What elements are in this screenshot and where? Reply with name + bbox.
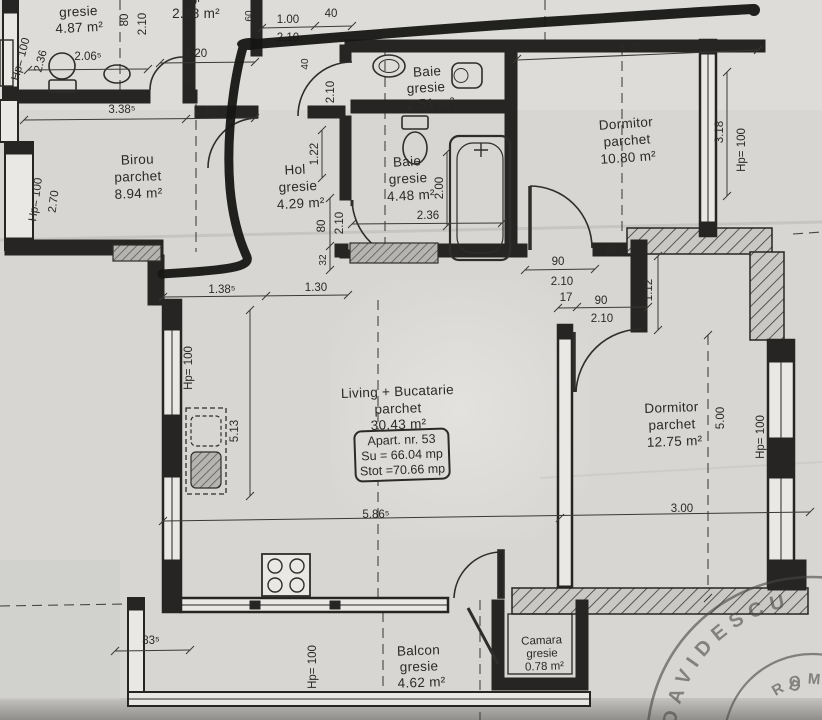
dim-label: 1.12 [643, 279, 655, 301]
dim-label: 2.10 [137, 13, 149, 35]
room-finish: parchet [114, 168, 162, 185]
room-finish: gresie [526, 647, 558, 660]
dim-label: 2.06⁵ [74, 51, 101, 63]
room-finish: gresie [406, 79, 445, 96]
floor-plan-scan: gresie 4.87 m² gr 2.98 m² Baie gresie 2.… [0, 0, 822, 720]
dim-label: Hp= 100 [183, 346, 195, 390]
room-area: 4.62 m² [397, 674, 446, 691]
room-area: 12.75 m² [647, 433, 703, 450]
dim-label: 90 [552, 256, 565, 268]
radiator-icon [113, 245, 161, 261]
dim-label: 80 [316, 220, 328, 233]
dim-label: 83⁵ [142, 635, 160, 647]
apartment-info-box: Apart. nr. 53 Su = 66.04 mp Stot =70.66 … [354, 428, 450, 481]
dim-label: 3.18 [714, 121, 726, 143]
dim-label: 17 [560, 292, 573, 304]
dim-label: 90 [183, 78, 195, 89]
dim-label: 32 [318, 254, 329, 266]
dim-label: 60 [244, 10, 255, 22]
room-finish: gresie [59, 3, 98, 20]
dim-label: 40 [300, 58, 311, 70]
dim-label: 2.00 [434, 177, 446, 199]
room-area: 0.78 m² [525, 660, 565, 673]
dim-label: 2.10 [195, 105, 217, 117]
dim-label: 1.20 [185, 48, 207, 60]
room-finish: parchet [374, 400, 422, 417]
room-finish: gresie [399, 658, 438, 674]
room-finish: gresie [388, 170, 427, 187]
room-area: 4.48 m² [387, 187, 436, 204]
dim-label: Hp= 100 [736, 128, 748, 172]
room-name: Hol [284, 162, 306, 178]
dim-label: 40 [325, 8, 338, 20]
room-name: Dormitor [644, 399, 699, 416]
dim-label: 1.22 [309, 143, 321, 165]
room-name: Balcon [397, 642, 441, 658]
dim-label: 2.10 [551, 276, 573, 288]
room-name: Birou [121, 151, 155, 167]
room-finish: gr [191, 0, 201, 5]
dim-label: 2.10 [325, 81, 337, 103]
room-name: Camara [521, 634, 563, 647]
room-area: 4.29 m² [277, 195, 326, 212]
dim-label: 3.00 [671, 503, 693, 515]
radiator-icon [350, 243, 438, 263]
dim-label: 2.10 [591, 313, 613, 325]
room-name: Baie [413, 63, 442, 79]
dim-label: 1.30 [305, 282, 327, 294]
dim-label: 1.38⁵ [208, 284, 235, 296]
apartment-number: Apart. nr. 53 [367, 432, 436, 448]
room-area: 8.94 m² [114, 185, 163, 202]
room-area: 4.87 m² [55, 19, 104, 36]
dim-label: 3.70 [618, 42, 641, 55]
dim-label: Hp= 100 [755, 415, 767, 459]
dim-label: Hp= 100 [307, 645, 319, 689]
dim-label: 5.86⁵ [362, 509, 389, 521]
room-area: 2.51 m² [407, 95, 456, 112]
floor-plan-drawing: gresie 4.87 m² gr 2.98 m² Baie gresie 2.… [0, 0, 822, 720]
dim-label: 80 [119, 14, 131, 27]
dim-label: 5.13 [229, 420, 241, 442]
dim-label: 60 [605, 246, 617, 257]
room-name: Baie [393, 153, 422, 169]
total-area: Stot =70.66 mp [360, 462, 446, 479]
room-label-dormitor-1080: Dormitor parchet 10.80 m² [598, 114, 657, 167]
dim-label: 2.36 [417, 210, 439, 222]
room-finish: gresie [278, 178, 317, 195]
room-label-dormitor-1275: Dormitor parchet 12.75 m² [644, 399, 703, 450]
dim-label: 2.10 [334, 212, 346, 234]
room-area: 2.98 m² [172, 6, 220, 21]
dim-label: 5.00 [715, 407, 727, 429]
dim-label: 1.00 [277, 14, 299, 26]
room-label-bath-tl: gresie 4.87 m² [54, 3, 104, 36]
room-finish: parchet [648, 416, 696, 433]
useful-area: Su = 66.04 mp [361, 447, 443, 464]
dim-label: 90 [595, 295, 608, 307]
dim-label: 3.38⁵ [108, 104, 135, 116]
